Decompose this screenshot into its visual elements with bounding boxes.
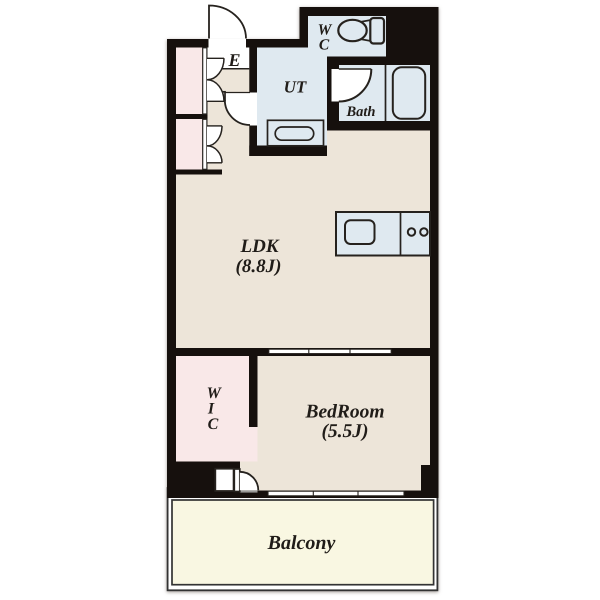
svg-text:C: C (319, 37, 330, 54)
svg-text:BedRoom: BedRoom (304, 402, 384, 423)
svg-text:LDK: LDK (240, 236, 280, 257)
svg-text:Bath: Bath (345, 104, 375, 120)
svg-text:(5.5J): (5.5J) (321, 421, 368, 442)
svg-text:E: E (227, 50, 240, 70)
svg-text:W: W (207, 385, 223, 402)
svg-text:C: C (208, 416, 219, 433)
svg-text:Balcony: Balcony (267, 532, 336, 554)
svg-text:(8.8J): (8.8J) (236, 256, 282, 277)
svg-text:I: I (207, 401, 215, 418)
svg-text:UT: UT (284, 78, 307, 97)
